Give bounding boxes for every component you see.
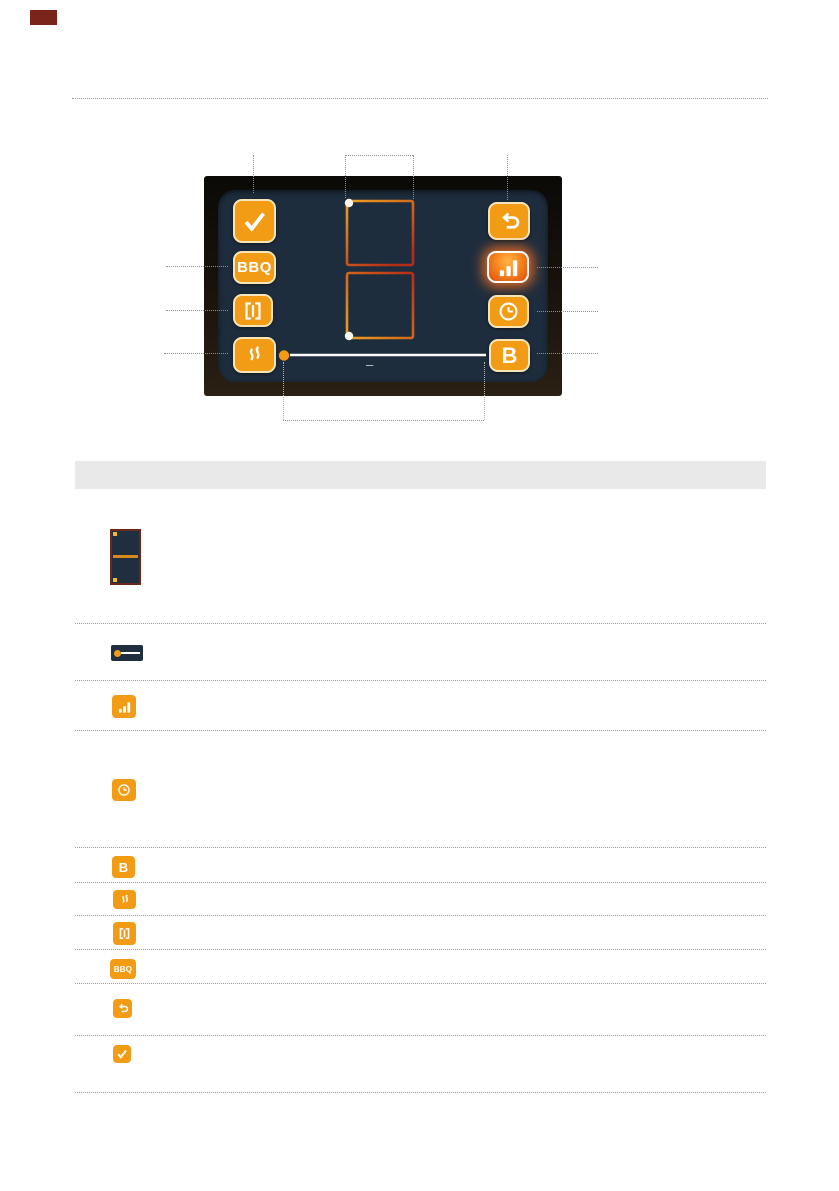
row-separator — [75, 915, 766, 916]
row-separator — [75, 680, 766, 681]
callout-zones-top — [345, 155, 413, 156]
checkmark-icon — [116, 1048, 128, 1060]
legend-header-bar — [75, 461, 766, 489]
callout-flame — [164, 353, 228, 354]
booster-legend-icon: B — [112, 856, 135, 878]
flame-legend-icon — [113, 890, 136, 909]
slider-knob[interactable] — [279, 350, 289, 360]
zone-dot-top — [113, 532, 117, 536]
row-separator — [75, 1092, 766, 1093]
bbq-legend-icon: BBQ — [110, 959, 136, 979]
power-level-legend-icon — [112, 695, 136, 718]
control-panel: – BBQ — [218, 190, 548, 382]
return-arrow-icon — [496, 209, 523, 234]
callout-booster — [537, 353, 598, 354]
callout-zones-left — [345, 155, 346, 198]
row-separator — [75, 882, 766, 883]
booster-legend-label: B — [119, 860, 128, 875]
bridge-button[interactable] — [233, 294, 273, 327]
dual-zone-display-icon — [110, 529, 141, 585]
confirm-button[interactable] — [233, 199, 276, 243]
callout-slider-right — [484, 362, 485, 420]
timer-legend-icon — [112, 779, 136, 801]
callout-slider-bottom — [283, 420, 484, 421]
zone-divider-line — [113, 555, 138, 558]
row-separator — [75, 847, 766, 848]
bbq-button[interactable]: BBQ — [233, 251, 276, 284]
callout-power — [537, 267, 598, 268]
zone-1-dot — [345, 199, 353, 207]
checkmark-icon — [241, 208, 268, 235]
flame-button[interactable] — [233, 337, 276, 373]
zone-dot-bottom — [113, 578, 117, 582]
booster-button-label: B — [502, 343, 518, 369]
control-panel-frame: – BBQ — [204, 176, 562, 396]
row-separator — [75, 730, 766, 731]
zone-2-outline — [347, 273, 413, 338]
slider-minus-label: – — [366, 358, 373, 371]
bridge-legend-icon — [113, 922, 136, 945]
zone-1-outline — [347, 201, 413, 265]
back-button[interactable] — [488, 202, 530, 240]
row-separator — [75, 1035, 766, 1036]
callout-bridge — [166, 310, 228, 311]
slider-icon — [111, 645, 143, 661]
power-level-button[interactable] — [487, 251, 529, 283]
return-arrow-icon — [116, 1002, 130, 1015]
callout-zones-right — [413, 155, 414, 199]
bbq-button-label: BBQ — [237, 259, 272, 276]
slider-icon-knob — [114, 650, 121, 657]
callout-back — [507, 155, 508, 200]
callout-timer — [537, 311, 598, 312]
callout-slider-left — [283, 362, 284, 420]
zone-2-dot — [345, 332, 353, 340]
flame-icon — [242, 343, 267, 368]
callout-confirm — [253, 155, 254, 193]
booster-button[interactable]: B — [489, 339, 530, 372]
callout-bbq — [166, 266, 228, 267]
power-level-bars-icon — [497, 257, 520, 278]
page-corner-mark — [30, 10, 57, 25]
back-legend-icon — [113, 999, 132, 1018]
row-separator — [75, 623, 766, 624]
confirm-legend-icon — [113, 1045, 131, 1063]
power-level-bars-icon — [117, 700, 132, 714]
row-separator — [75, 949, 766, 950]
clock-icon — [116, 782, 132, 798]
bridge-icon — [117, 926, 132, 941]
manual-page: – BBQ — [0, 0, 839, 1191]
clock-icon — [496, 299, 521, 324]
top-divider — [72, 98, 768, 99]
row-separator — [75, 983, 766, 984]
bridge-icon — [241, 299, 265, 323]
bbq-legend-label: BBQ — [114, 965, 132, 974]
timer-button[interactable] — [488, 295, 529, 328]
flame-icon — [118, 893, 132, 907]
slider-icon-bar — [121, 652, 140, 655]
